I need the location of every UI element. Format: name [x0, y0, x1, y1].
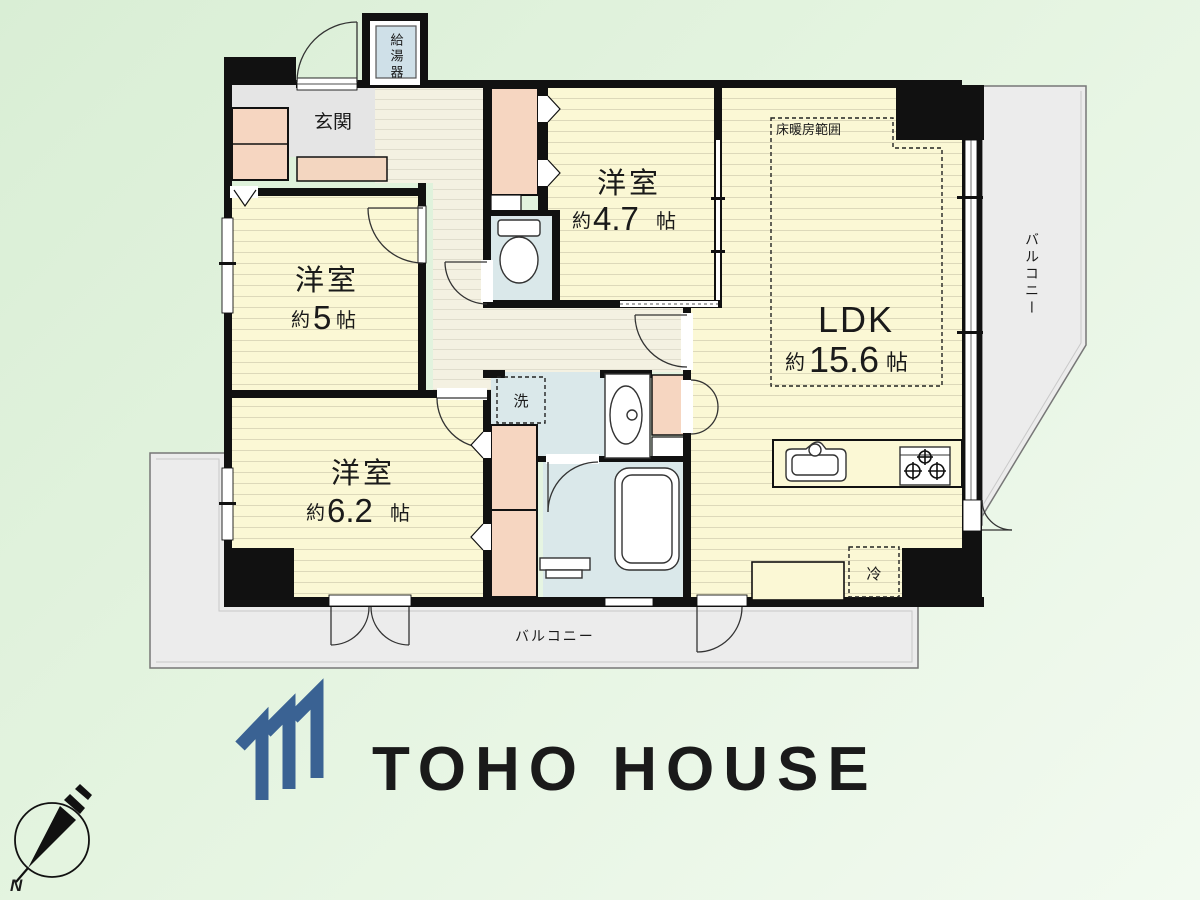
- label-water-heater: 給湯器: [389, 33, 404, 81]
- svg-text:約: 約: [785, 351, 805, 374]
- entrance-step: [297, 157, 387, 181]
- label-balcony-bottom: バルコニー: [515, 628, 595, 644]
- compass: N: [10, 784, 92, 895]
- svg-text:6.2: 6.2: [327, 492, 373, 529]
- svg-text:帖: 帖: [886, 350, 908, 375]
- floor-plan: 玄関 給湯器 洋室 約 4.7 帖 洋室 約 5 帖 洋室 約 6.2 帖 LD…: [0, 0, 1200, 900]
- counter-bench: [752, 562, 844, 600]
- label-washer: 洗: [513, 393, 528, 410]
- toilet-bowl: [500, 237, 538, 283]
- svg-text:約: 約: [572, 210, 591, 232]
- svg-text:洋室: 洋室: [597, 167, 661, 200]
- faucet: [809, 444, 821, 456]
- label-fridge: 冷: [866, 566, 881, 583]
- svg-text:約: 約: [306, 502, 325, 524]
- label-balcony-right: バルコニー: [1024, 232, 1040, 317]
- svg-text:帖: 帖: [656, 210, 676, 233]
- svg-text:帖: 帖: [390, 502, 410, 525]
- svg-text:LDK: LDK: [818, 299, 894, 340]
- svg-text:洋室: 洋室: [331, 457, 395, 490]
- svg-text:5: 5: [313, 299, 331, 336]
- toho-house-logo-mark: [240, 694, 317, 800]
- compass-needle: [28, 806, 76, 868]
- stove: [900, 447, 950, 485]
- label-entrance: 玄関: [314, 111, 352, 133]
- toho-house-logo: TOHO HOUSE: [240, 694, 878, 804]
- svg-text:4.7: 4.7: [593, 200, 639, 237]
- svg-text:帖: 帖: [336, 309, 356, 332]
- closet-bedroom47: [491, 88, 538, 195]
- toilet-tank: [498, 220, 540, 236]
- svg-text:約: 約: [291, 309, 310, 331]
- svg-text:15.6: 15.6: [809, 339, 879, 380]
- svg-text:洋室: 洋室: [295, 264, 359, 297]
- compass-north-label: N: [10, 876, 23, 895]
- toho-house-logo-text: TOHO HOUSE: [372, 735, 878, 804]
- closet-washroom: [652, 375, 685, 435]
- label-floor-heating: 床暖房範囲: [776, 122, 841, 137]
